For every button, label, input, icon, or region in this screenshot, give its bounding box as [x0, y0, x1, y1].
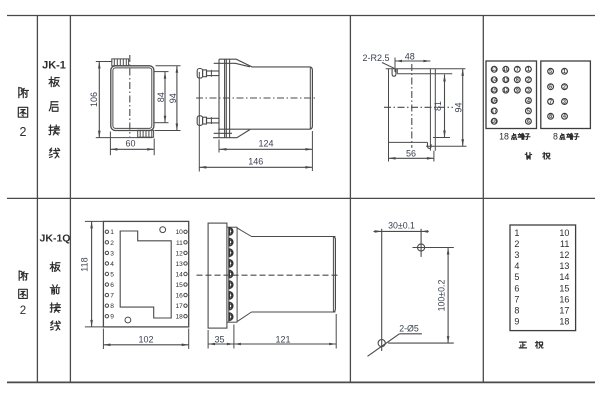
svg-text:10: 10: [503, 67, 509, 73]
svg-text:94: 94: [168, 93, 178, 103]
svg-text:35: 35: [214, 334, 224, 344]
svg-text:13: 13: [175, 261, 183, 268]
svg-text:5: 5: [527, 109, 530, 115]
svg-text:2: 2: [110, 240, 114, 247]
svg-text:1: 1: [110, 229, 114, 236]
svg-text:10: 10: [175, 229, 183, 236]
svg-text:18: 18: [559, 316, 569, 326]
svg-text:1: 1: [514, 228, 519, 238]
svg-text:JK-1Q: JK-1Q: [40, 233, 71, 245]
svg-text:14: 14: [559, 272, 569, 282]
svg-text:81: 81: [433, 101, 443, 111]
svg-text:15: 15: [491, 88, 497, 94]
svg-text:18: 18: [175, 314, 183, 321]
svg-text:124: 124: [258, 138, 273, 148]
svg-text:4: 4: [110, 261, 114, 268]
svg-text:5: 5: [110, 271, 114, 278]
svg-text:4: 4: [514, 261, 519, 271]
svg-text:8: 8: [516, 78, 519, 84]
svg-text:118: 118: [80, 257, 90, 271]
svg-text:3: 3: [110, 250, 114, 257]
svg-text:56: 56: [406, 148, 416, 158]
svg-text:2: 2: [527, 78, 530, 84]
svg-text:13: 13: [559, 261, 569, 271]
svg-text:6: 6: [527, 119, 530, 125]
svg-text:3: 3: [514, 250, 519, 260]
svg-text:1: 1: [527, 67, 530, 73]
svg-text:18: 18: [491, 119, 497, 125]
svg-text:11: 11: [560, 239, 569, 249]
svg-text:7: 7: [549, 99, 552, 105]
svg-text:121: 121: [275, 334, 290, 344]
svg-text:17: 17: [491, 109, 497, 115]
svg-text:8: 8: [549, 114, 552, 120]
svg-text:12: 12: [175, 250, 183, 257]
svg-text:16: 16: [175, 293, 183, 300]
svg-text:2-Ø5: 2-Ø5: [399, 323, 419, 333]
svg-text:1: 1: [563, 69, 566, 75]
svg-text:8: 8: [110, 303, 114, 310]
svg-text:6: 6: [549, 85, 552, 91]
svg-text:16: 16: [491, 98, 497, 104]
svg-text:9: 9: [516, 88, 519, 94]
svg-text:17: 17: [559, 305, 569, 315]
svg-text:6: 6: [110, 282, 114, 289]
svg-text:7: 7: [516, 67, 519, 73]
svg-text:146: 146: [248, 156, 263, 166]
svg-text:102: 102: [138, 335, 153, 345]
svg-text:6: 6: [514, 283, 519, 293]
svg-text:9: 9: [514, 316, 519, 326]
svg-text:2-R2.5: 2-R2.5: [362, 53, 389, 63]
svg-text:5: 5: [549, 69, 552, 75]
svg-text:100±0.2: 100±0.2: [437, 280, 447, 312]
svg-text:18: 18: [499, 132, 509, 142]
svg-text:3: 3: [563, 99, 566, 105]
svg-text:4: 4: [527, 98, 530, 104]
svg-text:15: 15: [175, 282, 183, 289]
svg-text:2: 2: [20, 305, 26, 317]
svg-text:15: 15: [559, 283, 569, 293]
svg-text:11: 11: [503, 78, 509, 84]
svg-text:4: 4: [563, 114, 566, 120]
svg-text:60: 60: [125, 138, 135, 148]
svg-text:16: 16: [559, 294, 569, 304]
svg-text:8: 8: [514, 305, 519, 315]
svg-text:94: 94: [453, 102, 463, 112]
svg-text:2: 2: [563, 85, 566, 91]
svg-text:48: 48: [405, 52, 415, 62]
svg-text:12: 12: [503, 88, 509, 94]
svg-text:5: 5: [514, 272, 519, 282]
svg-text:30±0.1: 30±0.1: [388, 220, 415, 230]
svg-text:3: 3: [527, 88, 530, 94]
svg-text:7: 7: [514, 294, 519, 304]
svg-text:2: 2: [20, 125, 27, 139]
svg-text:7: 7: [110, 293, 114, 300]
svg-text:14: 14: [491, 78, 497, 84]
svg-text:2: 2: [514, 239, 519, 249]
svg-text:9: 9: [110, 314, 114, 321]
svg-text:14: 14: [175, 271, 183, 278]
svg-text:106: 106: [89, 92, 99, 107]
svg-text:10: 10: [559, 228, 569, 238]
svg-text:8: 8: [553, 132, 558, 142]
svg-text:84: 84: [156, 92, 166, 102]
svg-text:12: 12: [559, 250, 569, 260]
svg-text:JK-1: JK-1: [42, 60, 66, 72]
svg-text:17: 17: [175, 303, 183, 310]
svg-text:11: 11: [176, 240, 183, 247]
svg-text:13: 13: [491, 67, 497, 73]
